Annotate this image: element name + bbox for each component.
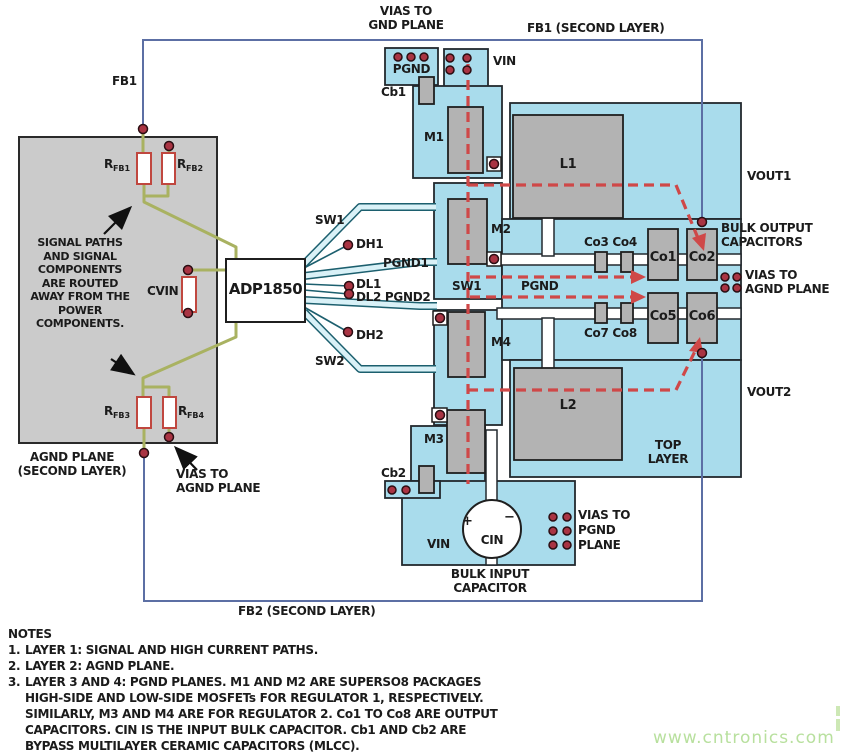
co2-label: Co2 [683, 251, 721, 265]
rfb4-label: RFB4 [178, 404, 204, 423]
bulk-output-capacitors-label: BULK OUTPUT CAPACITORS [721, 221, 813, 249]
vias-agnd-right-label: VIAS TO AGND PLANE [745, 268, 829, 296]
capacitor-co7 [595, 303, 607, 323]
rfb3-main: R [104, 404, 113, 418]
vin-pad-via-3 [446, 66, 454, 74]
m2-label: M2 [491, 222, 511, 236]
cin-label: CIN [472, 533, 512, 547]
vias-pgnd-line3: PLANE [578, 538, 630, 553]
bulk-output-line2: CAPACITORS [721, 235, 813, 249]
co1-label: Co1 [644, 251, 682, 265]
co6-sense-via [698, 349, 707, 358]
vias-agnd-left-label: VIAS TO AGND PLANE [176, 467, 260, 495]
l1-label: L1 [513, 158, 623, 172]
vias-agnd-left-line2: AGND PLANE [176, 481, 260, 495]
capacitor-cb2 [419, 466, 434, 493]
fb1-second-layer-label: FB1 (SECOND LAYER) [527, 21, 664, 35]
notes-title: NOTES [8, 626, 553, 642]
fb1-via [139, 125, 148, 134]
watermark-edge-mark [836, 706, 840, 731]
co2-sense-via [698, 218, 707, 227]
rfb2-via [165, 142, 174, 151]
vin-pad-via-1 [446, 54, 454, 62]
vias-agnd-right-line2: AGND PLANE [745, 282, 829, 296]
vin-pad-via-4 [463, 66, 471, 74]
cb2-via-2 [402, 486, 410, 494]
co5-label: Co5 [644, 310, 682, 324]
top-layer-line1: TOP [640, 438, 696, 452]
pgnd-pad-label: PGND [385, 62, 438, 76]
pgnd-pad-via-1 [394, 53, 402, 61]
vin-bottom-label: VIN [427, 537, 450, 551]
l2-label: L2 [514, 399, 622, 413]
vin-pad-via-2 [463, 54, 471, 62]
capacitor-cin [463, 500, 521, 558]
vias-gnd-plane-label: VIAS TO GND PLANE [346, 4, 466, 32]
l1-stem [542, 217, 554, 256]
sw1-region-label: SW1 [452, 279, 481, 293]
pcb-layout-diagram: VIAS TO GND PLANE FB1 (SECOND LAYER) FB1… [0, 0, 842, 756]
pgnd-via-5 [549, 541, 557, 549]
top-layer-line2: LAYER [640, 452, 696, 466]
pgnd1-label: PGND1 [383, 256, 429, 270]
resistor-rfb1 [137, 153, 151, 184]
top-layer-label: TOP LAYER [640, 438, 696, 466]
agnd-via-2 [733, 273, 741, 281]
dl1-trace [304, 284, 349, 286]
capacitor-co3 [595, 252, 607, 272]
mosfet-m1 [448, 107, 483, 173]
co7co8-label: Co7 Co8 [584, 326, 637, 340]
agnd-plane-label: AGND PLANE (SECOND LAYER) [8, 450, 136, 478]
vias-pgnd-plane-label: VIAS TO PGND PLANE [578, 508, 630, 553]
note-2-text: LAYER 2: AGND PLANE. [25, 658, 505, 674]
vias-agnd-left-line1: VIAS TO [176, 467, 260, 481]
bulk-input-capacitor-label: BULK INPUT CAPACITOR [438, 567, 542, 595]
capacitor-co4 [621, 252, 633, 272]
rfb3-label: RFB3 [104, 404, 130, 423]
dh1-label: DH1 [356, 237, 383, 251]
sw1-pin-label: SW1 [315, 213, 344, 227]
cvin-via-top [184, 266, 193, 275]
dl2-pgnd2-label: DL2 PGND2 [356, 290, 430, 304]
m3-via [436, 411, 445, 420]
vin-top-label: VIN [493, 54, 516, 68]
cin-minus-sign: − [504, 511, 515, 525]
vout2-label: VOUT2 [747, 385, 791, 399]
m4-label: M4 [491, 335, 511, 349]
rfb1-label: RFB1 [104, 157, 130, 176]
pgnd-via-1 [549, 513, 557, 521]
agnd-via-4 [733, 284, 741, 292]
vout1-label: VOUT1 [747, 169, 791, 183]
co6-label: Co6 [683, 310, 721, 324]
inductor-l2 [514, 368, 622, 460]
cb2-via-1 [388, 486, 396, 494]
m4-via [436, 314, 445, 323]
agnd-via-3 [721, 284, 729, 292]
agnd-via-1 [721, 273, 729, 281]
note-3-number: 3. [8, 674, 25, 754]
bulk-input-line2: CAPACITOR [438, 581, 542, 595]
dh1-via [344, 241, 353, 250]
cb2-label: Cb2 [381, 466, 406, 480]
dh2-label: DH2 [356, 328, 383, 342]
fb2-second-layer-label: FB2 (SECOND LAYER) [238, 604, 375, 618]
m3-label: M3 [424, 432, 444, 446]
pgnd-pad-via-2 [407, 53, 415, 61]
pgnd-via-6 [563, 541, 571, 549]
resistor-rfb4 [163, 397, 176, 428]
cvin-via-bottom [184, 309, 193, 318]
vias-gnd-line2: GND PLANE [346, 18, 466, 32]
rfb2-label: RFB2 [177, 157, 203, 176]
agnd-line1: AGND PLANE [8, 450, 136, 464]
rfb2-main: R [177, 157, 186, 171]
pgnd-pad-via-3 [420, 53, 428, 61]
cin-channel [486, 430, 497, 502]
m1-label: M1 [424, 130, 444, 144]
watermark: www.cntronics.com [653, 728, 835, 748]
rfb1-sub: FB1 [113, 164, 130, 173]
rfb4-sub: FB4 [187, 411, 204, 420]
pgnd-via-4 [563, 527, 571, 535]
rfb2-sub: FB2 [186, 164, 203, 173]
rfb1-main: R [104, 157, 113, 171]
mosfet-m3 [447, 410, 485, 473]
vias-pgnd-line1: VIAS TO [578, 508, 630, 523]
cvin-label: CVIN [147, 284, 178, 298]
m1-via [490, 160, 499, 169]
capacitor-co8 [621, 303, 633, 323]
note-item-2: 2. LAYER 2: AGND PLANE. [8, 658, 553, 674]
vias-agnd-right-line1: VIAS TO [745, 268, 829, 282]
rfb4-main: R [178, 404, 187, 418]
co3co4-label: Co3 Co4 [584, 235, 637, 249]
bulk-input-line1: BULK INPUT [438, 567, 542, 581]
dh2-via [344, 328, 353, 337]
rfb4-via [165, 433, 174, 442]
bulk-output-line1: BULK OUTPUT [721, 221, 813, 235]
note-1-text: LAYER 1: SIGNAL AND HIGH CURRENT PATHS. [25, 642, 505, 658]
capacitor-cvin [182, 277, 196, 312]
note-1-number: 1. [8, 642, 25, 658]
cin-plus-sign: + [462, 515, 473, 529]
pgnd-region-label: PGND [521, 279, 558, 293]
l2-stem [542, 318, 554, 370]
vias-gnd-line1: VIAS TO [346, 4, 466, 18]
note-2-number: 2. [8, 658, 25, 674]
note-item-3: 3. LAYER 3 AND 4: PGND PLANES. M1 AND M2… [8, 674, 553, 754]
vias-pgnd-line2: PGND [578, 523, 630, 538]
note-3-text: LAYER 3 AND 4: PGND PLANES. M1 AND M2 AR… [25, 674, 505, 754]
resistor-rfb2 [162, 153, 175, 184]
signal-routing-note: SIGNAL PATHS AND SIGNAL COMPONENTS ARE R… [30, 236, 130, 331]
fb2-via [140, 449, 149, 458]
note-item-1: 1. LAYER 1: SIGNAL AND HIGH CURRENT PATH… [8, 642, 553, 658]
rfb3-sub: FB3 [113, 411, 130, 420]
agnd-line2: (SECOND LAYER) [8, 464, 136, 478]
m2-via [490, 255, 499, 264]
pgnd-via-3 [549, 527, 557, 535]
notes-block: NOTES 1. LAYER 1: SIGNAL AND HIGH CURREN… [8, 626, 553, 754]
capacitor-cb1 [419, 77, 434, 104]
dl1-label: DL1 [356, 277, 381, 291]
dl2-via [345, 290, 354, 299]
sw2-pin-label: SW2 [315, 354, 344, 368]
resistor-rfb3 [137, 397, 151, 428]
adp1850-label: ADP1850 [226, 282, 305, 296]
pgnd-via-2 [563, 513, 571, 521]
cb1-label: Cb1 [381, 85, 406, 99]
dl2-trace [304, 290, 349, 294]
fb1-label: FB1 [112, 74, 137, 88]
